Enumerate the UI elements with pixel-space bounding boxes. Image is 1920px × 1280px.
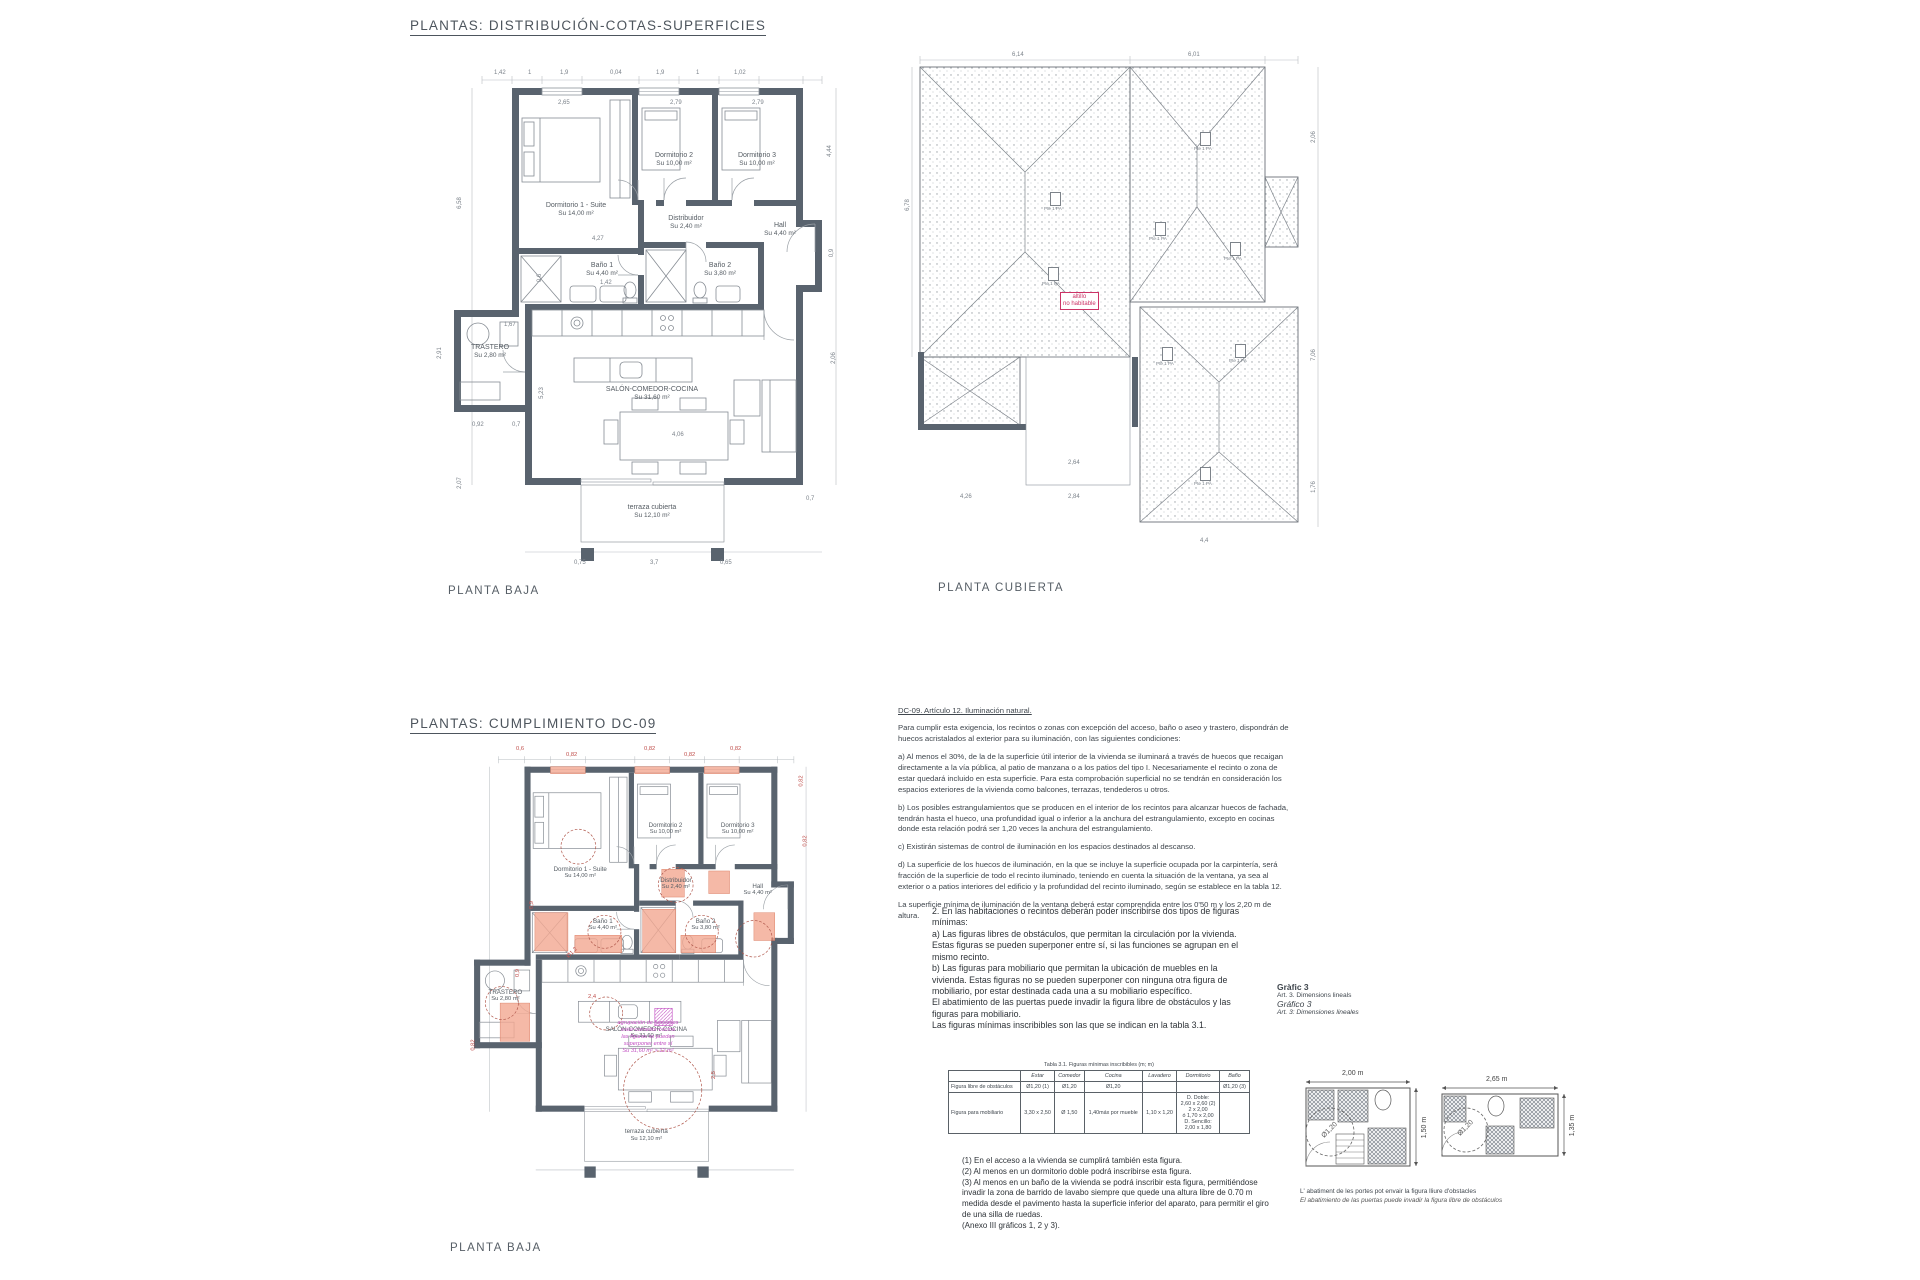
dc09-intro: Para cumplir esta exigencia, los recinto… [898,723,1290,745]
dc09-red-dimension: 0,82 [644,746,655,752]
dimension-label: 0,65 [720,560,732,566]
dimension-label: 1,02 [734,70,746,76]
dimension-label: 2,91 [437,347,443,359]
table-row: Figura libre de obstáculosØ1,20 (1)Ø1,20… [949,1082,1250,1093]
table-cell: 3,30 x 2,50 [1021,1093,1055,1134]
table-header: Comedor [1055,1071,1084,1082]
bathroom-diagram-right: Ø1,20 2,65 m 1,35 m [1434,1082,1572,1175]
figuras-paragraph: a) Las figuras libres de obstáculos, que… [932,929,1254,963]
dc09-condition: d) La superficie de los huecos de ilumin… [898,860,1290,893]
roof-note: altillono habitable [1060,292,1099,310]
dc09-red-dimension: 0,82 [684,752,695,758]
table-header: Lavadero [1142,1071,1176,1082]
table-row: Figura para mobiliario3,30 x 2,50Ø 1,501… [949,1093,1250,1134]
dimension-label: 1,42 [600,280,612,286]
grafico-3-label: Gràfic 3 Art. 3. Dimensions lineals Gráf… [1277,982,1447,1016]
floor-plan-dimensions: 1,4211,90,041,911,022,652,792,796,582,91… [424,60,844,600]
dimension-label: 3,7 [650,560,658,566]
roof-dimension-label: 6,14 [1012,52,1024,58]
dc09-note-line: superponer entre sí [600,1041,696,1048]
diagram-caption-line: El abatimiento de las puertas puede inva… [1300,1197,1570,1206]
dimension-label: 2,79 [752,100,764,106]
dimension-label: 5,23 [539,387,545,399]
dc09-note-line: las figuras se pueden [600,1034,696,1041]
dimension-label: 6,58 [457,197,463,209]
bathroom-diagram-left: Ø1,20 2,00 m 1,50 m [1296,1076,1424,1181]
dimension-label: 0,7 [512,422,520,428]
dc09-note-line: Su 31,60 m² > 12 m² [600,1048,696,1055]
dc09-red-dimension: 0,82 [799,775,805,786]
footnote: (3) Al menos en un baño de la vivienda s… [962,1178,1270,1221]
roof-plan-dimensions: 6,146,016,782,067,061,764,262,844,42,64 [900,52,1350,597]
roof-dimension-label: 7,06 [1311,349,1317,361]
table-header: Cocina [1084,1071,1142,1082]
dimension-label: 0,9 [829,249,835,257]
footnote: (Anexo III gráficos 1, 2 y 3). [962,1221,1270,1232]
grafico-3-title-es: Gráfico 3 [1277,999,1447,1009]
roof-dimension-label: 4,26 [960,494,972,500]
roof-dimension-label: 6,01 [1188,52,1200,58]
dimension-label: 4,27 [592,236,604,242]
dc09-note-line: agrupación de funciones [600,1020,696,1027]
dc09-red-dimension: 0,9 [529,901,535,909]
table-cell: Ø 1,50 [1055,1093,1084,1134]
diagram-left-height: 1,50 m [1421,1117,1428,1138]
figuras-paragraph: El abatimiento de las puertas puede inva… [932,997,1254,1020]
table-cell: Ø1,20 (3) [1220,1082,1250,1093]
dimension-label: 0,6 [537,274,543,282]
table-header: Dormitorio [1177,1071,1220,1082]
section2-title: PLANTAS: CUMPLIMIENTO DC-09 [410,716,656,734]
table-cell: Figura para mobiliario [949,1093,1021,1134]
dc09-condition: a) Al menos el 30%, de la de la superfic… [898,752,1290,796]
diagram-left-width: 2,00 m [1342,1070,1363,1077]
diagram-right-height: 1,35 m [1569,1115,1576,1136]
table-cell: 1,10 x 1,20 [1142,1093,1176,1134]
floor-plan-dc09-red-dimensions: 0,60,820,820,820,820,820,820,9Ø1,22,40,8… [448,742,820,1257]
dimension-label: 0,75 [574,560,586,566]
figuras-paragraph: 2. En las habitaciones o recintos deberá… [932,906,1254,929]
floor-plan-dc09: Dormitorio 1 - SuiteSu 14,00 m²Dormitori… [448,742,820,1257]
minimum-figures-text: 2. En las habitaciones o recintos deberá… [932,906,1254,1032]
dc09-red-dimension: 0,82 [471,1039,477,1050]
dimension-label: 1 [696,70,699,76]
diagram-right-width: 2,65 m [1486,1076,1507,1083]
figuras-table: EstarComedorCocinaLavaderoDormitorioBaño… [948,1070,1250,1134]
architectural-sheet: PLANTAS: DISTRIBUCIÓN-COTAS-SUPERFICIES … [0,0,1920,1280]
table-cell: D. Doble: 2,60 x 2,60 (2) 2 x 2,00 ó 1,7… [1177,1093,1220,1134]
dimension-label: 0,92 [472,422,484,428]
dc09-red-dimension: 0,82 [566,752,577,758]
table-cell [1220,1093,1250,1134]
grafic-3-subtitle: Art. 3. Dimensions lineals [1277,992,1447,999]
dimension-label: 1 [528,70,531,76]
table-cell [1177,1082,1220,1093]
dimension-label: 4,06 [672,432,684,438]
table-cell: Ø1,20 [1055,1082,1084,1093]
table-cell: Ø1,20 [1084,1082,1142,1093]
roof-dimension-label: 4,4 [1200,538,1208,544]
dc09-condition: b) Los posibles estrangulamientos que se… [898,803,1290,836]
footnote: (2) Al menos en un dormitorio doble podr… [962,1167,1270,1178]
tabla-title: Tabla 3.1. Figuras mínimas inscribibles … [948,1062,1250,1068]
plan2-caption: PLANTA BAJA [450,1242,542,1254]
plan1-caption: PLANTA BAJA [448,585,540,597]
floor-plan-planta-baja: Dormitorio 1 - SuiteSu 14,00 m²Dormitori… [424,60,844,600]
roof-dimension-label: 2,84 [1068,494,1080,500]
dimension-label: 0,7 [806,496,814,502]
grafico-3-subtitle-es: Art. 3: Dimensiones lineales [1277,1009,1447,1016]
dc09-conditions: a) Al menos el 30%, de la de la superfic… [898,752,1290,922]
dc09-condition: c) Existirán sistemas de control de ilum… [898,842,1290,853]
roof-dimension-label: 1,76 [1311,481,1317,493]
dc09-red-dimension: 2,5 [711,1071,717,1079]
footnote: (1) En el acceso a la vivienda se cumpli… [962,1156,1270,1167]
figuras-paragraph: Las figuras mínimas inscribibles son las… [932,1020,1254,1031]
dimension-label: 2,06 [831,352,837,364]
table-cell: Figura libre de obstáculos [949,1082,1021,1093]
dc09-red-dimension: 0,9 [515,969,521,977]
dimension-label: 1,42 [494,70,506,76]
dimension-label: 1,9 [656,70,664,76]
table-cell: Ø1,20 (1) [1021,1082,1055,1093]
diagram-caption-line: L' abatiment de les portes pot envair la… [1300,1188,1570,1197]
figuras-paragraph: b) Las figuras para mobiliario que permi… [932,963,1254,997]
roof-plan-planta-cubierta: Pte 1 PAPte 1 PAPte 1 PAPte 1 PAPte 1 PA… [900,52,1350,597]
dimension-label: 1,9 [560,70,568,76]
dimension-label: 2,07 [457,477,463,489]
table-header [949,1071,1021,1082]
diagram-caption: L' abatiment de les portes pot envair la… [1300,1188,1570,1206]
dc09-red-dimension: 0,6 [516,746,524,752]
roof-dimension-label: 2,64 [1068,460,1080,466]
table-header: Baño [1220,1071,1250,1082]
table-cell: 1,40máx por mueble [1084,1093,1142,1134]
dimension-label: 2,65 [558,100,570,106]
dc09-note-line: estar-comedor-cocina [600,1027,696,1034]
dimension-label: 4,44 [827,145,833,157]
dimension-label: 0,04 [610,70,622,76]
dc09-red-dimension: Ø1,2 [566,946,579,959]
dc09-red-dimension: 2,4 [588,994,596,1000]
dc09-compliance-note: agrupación de funcionesestar-comedor-coc… [600,1020,696,1055]
grafic-3-title: Gràfic 3 [1277,982,1447,992]
dc09-red-dimension: 0,82 [730,746,741,752]
roof-dimension-label: 6,78 [905,199,911,211]
roof-caption: PLANTA CUBIERTA [938,582,1064,594]
dc09-article-text: DC-09. Artículo 12. Iluminación natural.… [898,706,1290,929]
dimension-label: 2,79 [670,100,682,106]
table-cell [1142,1082,1176,1093]
table-footnotes: (1) En el acceso a la vivienda se cumpli… [962,1156,1270,1232]
tabla-3-1: Tabla 3.1. Figuras mínimas inscribibles … [948,1062,1250,1134]
roof-dimension-label: 2,06 [1311,131,1317,143]
dc09-heading: DC-09. Artículo 12. Iluminación natural. [898,706,1290,717]
table-header: Estar [1021,1071,1055,1082]
dc09-red-dimension: 0,82 [803,835,809,846]
section1-title: PLANTAS: DISTRIBUCIÓN-COTAS-SUPERFICIES [410,18,766,36]
dimension-label: 1,67 [504,322,516,328]
